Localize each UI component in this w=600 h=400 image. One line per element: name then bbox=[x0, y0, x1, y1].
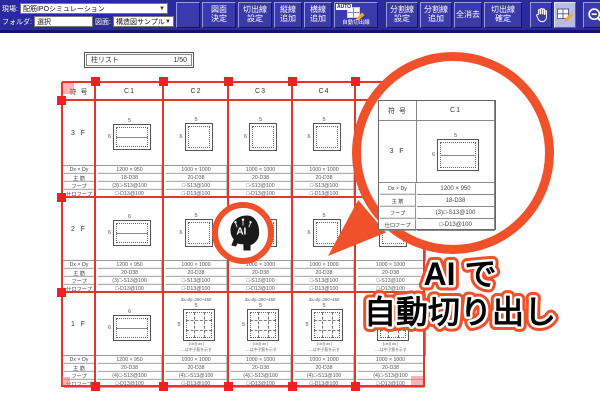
layout-grid-button[interactable] bbox=[176, 2, 200, 28]
row-label: フープ bbox=[64, 182, 95, 190]
rebar-count-left: 6 bbox=[108, 134, 111, 140]
size-range-note: dx=dy=250~450 bbox=[181, 298, 212, 302]
svg-text:AI で: AI で bbox=[424, 256, 497, 292]
row-label: Dx × Dy bbox=[64, 166, 95, 174]
cut-line-handle[interactable] bbox=[57, 288, 66, 297]
column-section-diagram bbox=[247, 309, 279, 341]
cell-value: (4)□-S13@100 bbox=[98, 372, 163, 380]
ai-head-icon: AI bbox=[223, 213, 263, 253]
zoom-row-value: 18-D38 bbox=[417, 195, 495, 207]
folder-input[interactable]: 選択 bbox=[34, 16, 93, 27]
cell-value: 1200 × 950 bbox=[98, 261, 163, 269]
drawing-label: 図面: bbox=[95, 17, 111, 27]
drawing-title-box: 柱リスト 1/50 bbox=[84, 52, 194, 68]
column-section-diagram bbox=[113, 220, 151, 246]
rebar-count-left: 5 bbox=[242, 322, 245, 328]
cell-value: 20-D38 bbox=[231, 269, 292, 277]
rebar-count-left: 6 bbox=[179, 230, 182, 236]
cell-value: 20-D38 bbox=[295, 364, 355, 372]
cut-line-vertical[interactable] bbox=[61, 82, 63, 387]
cut-line-handle[interactable] bbox=[224, 77, 233, 86]
zoom-row-value: 1200 × 950 bbox=[417, 183, 495, 195]
selection-marker bbox=[62, 377, 70, 385]
column-section-cell: 66 bbox=[96, 198, 164, 261]
cell-value: 1000 × 1000 bbox=[166, 166, 228, 174]
floor-label: 3 F bbox=[63, 101, 96, 166]
row-label: Dx × Dy bbox=[64, 261, 95, 269]
cell-value: 20-D38 bbox=[98, 364, 163, 372]
cell-value: (4)□-S13@100 bbox=[166, 372, 228, 380]
svg-text:自動切り出し: 自動切り出し bbox=[364, 294, 556, 330]
cutline-setting-button[interactable]: 切出線 設定 bbox=[238, 2, 272, 28]
zoom-row-label: Dx × Dy bbox=[380, 183, 416, 194]
cut-line-handle[interactable] bbox=[288, 382, 297, 391]
column-section-diagram bbox=[183, 309, 215, 341]
column-section-diagram bbox=[113, 124, 151, 150]
rebar-count-left: 6 bbox=[307, 230, 310, 236]
cut-line-handle[interactable] bbox=[57, 193, 66, 202]
cell-value: 1000 × 1000 bbox=[358, 356, 425, 364]
vertical-line-add-button[interactable]: 縦線 追加 bbox=[274, 2, 302, 28]
column-section-cell: dx=dy=250~45055⌊dx⌋⌊dx⌋----は中子筋を示す bbox=[229, 293, 293, 356]
rebar-count-left: 6 bbox=[307, 134, 310, 140]
auto-cutline-label: 自動切出線 bbox=[342, 20, 370, 26]
cell-value: 20-D38 bbox=[231, 364, 292, 372]
rebar-count-left: 6 bbox=[179, 134, 182, 140]
cell-value: (4)□-S13@100 bbox=[231, 372, 292, 380]
cell-value: □-S13@100 bbox=[231, 277, 292, 285]
cell-value: 1200 × 950 bbox=[98, 356, 163, 364]
drawing-scale: 1/50 bbox=[173, 57, 187, 64]
drawing-select[interactable]: 構造図サンプル▼ bbox=[113, 16, 174, 27]
column-section-cell: dx=dy=250~45055⌊dx⌋⌊dx⌋----は中子筋を示す bbox=[164, 293, 229, 356]
clear-all-button[interactable]: 全消去 bbox=[454, 2, 482, 28]
app-window: 現場: 配筋IPOシミュレーション▼ フォルダ: 選択 図面: 構造図サンプル▼… bbox=[0, 0, 600, 400]
column-section-diagram bbox=[185, 219, 213, 247]
zoom-out-button[interactable] bbox=[583, 2, 600, 28]
column-section-diagram bbox=[313, 123, 341, 151]
cell-value: 18-D38 bbox=[98, 174, 163, 182]
pan-tool-button[interactable] bbox=[530, 2, 552, 28]
row-label: 主 筋 bbox=[64, 174, 95, 182]
cell-value: □-S13@100 bbox=[166, 277, 228, 285]
cell-value: (4)□-S13@100 bbox=[295, 372, 355, 380]
column-section-cell: 56 bbox=[96, 101, 164, 166]
cell-value: □-S13@100 bbox=[166, 182, 228, 190]
cut-line-handle[interactable] bbox=[224, 382, 233, 391]
rebar-count-left: 6 bbox=[108, 230, 111, 236]
cell-value: 1200 × 950 bbox=[98, 166, 163, 174]
column-section-cell: 56 bbox=[229, 101, 293, 166]
cut-line-handle[interactable] bbox=[57, 96, 66, 105]
cut-line-handle[interactable] bbox=[159, 77, 168, 86]
cut-line-horizontal[interactable] bbox=[62, 385, 425, 387]
cell-value: □-S13@100 bbox=[295, 182, 355, 190]
column-section-cell: 66 bbox=[96, 293, 164, 356]
cell-value: (3)□-S13@100 bbox=[98, 182, 163, 190]
rebar-count-left: 6 bbox=[108, 325, 111, 331]
svg-text:AI: AI bbox=[236, 227, 246, 238]
chevron-down-icon: ▼ bbox=[165, 19, 171, 25]
auto-cutline-button[interactable]: AUTO 自動切出線 bbox=[334, 2, 378, 28]
site-select[interactable]: 配筋IPOシミュレーション▼ bbox=[20, 3, 168, 14]
zoom-row-label: 仕口フープ bbox=[380, 219, 416, 230]
site-label: 現場: bbox=[2, 4, 18, 14]
column-section-diagram bbox=[249, 123, 277, 151]
column-section-diagram bbox=[113, 315, 151, 341]
cell-value: 1000 × 1000 bbox=[166, 356, 228, 364]
row-label: 主 筋 bbox=[64, 269, 95, 277]
ai-badge: AI bbox=[212, 202, 274, 264]
zoom-out-icon bbox=[587, 7, 600, 24]
cell-value: 20-D38 bbox=[358, 364, 425, 372]
cell-value: (3)□-S13@100 bbox=[98, 277, 163, 285]
divline-setting-button[interactable]: 分割線 設定 bbox=[386, 2, 418, 28]
rebar-count-left: 5 bbox=[305, 322, 308, 328]
ai-caption: AI で AI で AI で 自動切り出し 自動切り出し 自動切り出し bbox=[320, 245, 600, 345]
cut-line-vertical[interactable] bbox=[94, 82, 96, 387]
hand-icon bbox=[534, 7, 549, 23]
zoom-section-diagram: 5 6 bbox=[417, 121, 495, 183]
floor-label: 1 F bbox=[63, 293, 96, 356]
cell-value: 1000 × 1000 bbox=[295, 356, 355, 364]
cut-line-vertical[interactable] bbox=[291, 82, 293, 387]
rebar-count-left: 6 bbox=[432, 152, 435, 158]
cut-line-handle[interactable] bbox=[159, 382, 168, 391]
cell-value: 20-D38 bbox=[166, 269, 228, 277]
dimension-marks: ⌊dx⌋⌊dx⌋ bbox=[189, 341, 204, 346]
folder-label: フォルダ: bbox=[2, 17, 32, 27]
selection-marker bbox=[411, 376, 423, 385]
size-range-note: dx=dy=250~450 bbox=[245, 298, 276, 302]
column-section-diagram bbox=[437, 139, 479, 171]
cut-line-horizontal[interactable] bbox=[62, 81, 425, 83]
cell-value: 20-D38 bbox=[166, 364, 228, 372]
zoom-floor-label: 3 F bbox=[379, 121, 417, 183]
auto-tag: AUTO bbox=[336, 4, 352, 10]
cell-value: 20-D38 bbox=[295, 174, 355, 182]
cell-value: 1000 × 1000 bbox=[166, 261, 228, 269]
zoom-column-label: C1 bbox=[417, 101, 495, 121]
cut-line-handle[interactable] bbox=[351, 77, 360, 86]
drawing-title: 柱リスト bbox=[91, 55, 119, 65]
cell-value: 20-D38 bbox=[231, 174, 292, 182]
divline-add-button[interactable]: 分割線 追加 bbox=[420, 2, 452, 28]
zoom-row-label: 主 筋 bbox=[380, 195, 416, 206]
drawing-canvas[interactable]: 柱リスト 1/50 符 号C1C2C3C4C53 F5656565656Dx ×… bbox=[0, 33, 600, 400]
cut-line-handle[interactable] bbox=[351, 382, 360, 391]
cell-value: 1000 × 1000 bbox=[231, 356, 292, 364]
cell-value: 20-D38 bbox=[98, 269, 163, 277]
rebar-count-left: 6 bbox=[244, 134, 247, 140]
zoom-corner-label: 符 号 bbox=[379, 101, 417, 121]
column-section-cell: 56 bbox=[293, 101, 356, 166]
toolbar: 現場: 配筋IPOシミュレーション▼ フォルダ: 選択 図面: 構造図サンプル▼… bbox=[0, 0, 600, 30]
cut-line-vertical[interactable] bbox=[162, 82, 164, 387]
zoom-row-label: フープ bbox=[380, 207, 416, 218]
cell-value: 20-D38 bbox=[166, 174, 228, 182]
column-section-diagram bbox=[185, 123, 213, 151]
selection-marker bbox=[63, 83, 74, 94]
decide-drawing-button[interactable]: 図面 決定 bbox=[202, 2, 236, 28]
legend-note: ----は中子筋を示す bbox=[180, 347, 212, 351]
rebar-count-left: 5 bbox=[177, 322, 180, 328]
cell-value: □-S13@100 bbox=[231, 182, 292, 190]
legend-note: ----は中子筋を示す bbox=[375, 347, 407, 351]
cutline-confirm-button[interactable]: 切出線 確定 bbox=[484, 2, 522, 28]
zoom-row-value: □-D13@100 bbox=[417, 219, 495, 231]
legend-note: ----は中子筋を示す bbox=[308, 347, 340, 351]
zoom-row-value: (3)□-S13@100 bbox=[417, 207, 495, 219]
cutline-draw-tool-button[interactable] bbox=[554, 2, 576, 28]
row-label: フープ bbox=[64, 277, 95, 285]
cut-line-handle[interactable] bbox=[91, 382, 100, 391]
zoomed-cell-table: 符 号 C1 3 F 5 6 Dx × Dy 1200 × 950 主 筋 18… bbox=[378, 100, 496, 230]
project-fields: 現場: 配筋IPOシミュレーション▼ フォルダ: 選択 図面: 構造図サンプル▼ bbox=[2, 3, 174, 28]
row-label: Dx × Dy bbox=[64, 356, 95, 364]
cell-value: 1000 × 1000 bbox=[295, 166, 355, 174]
dimension-marks: ⌊dx⌋⌊dx⌋ bbox=[253, 341, 268, 346]
row-label: 主 筋 bbox=[64, 364, 95, 372]
horizontal-line-add-button[interactable]: 横線 追加 bbox=[304, 2, 332, 28]
chevron-down-icon: ▼ bbox=[159, 6, 165, 12]
cell-value: 1000 × 1000 bbox=[231, 166, 292, 174]
legend-note: ----は中子筋を示す bbox=[245, 347, 277, 351]
floor-label: 2 F bbox=[63, 198, 96, 261]
cut-line-handle[interactable] bbox=[288, 77, 297, 86]
window-pencil-icon bbox=[557, 8, 573, 22]
cut-line-handle[interactable] bbox=[91, 77, 100, 86]
column-section-cell: 56 bbox=[164, 101, 229, 166]
